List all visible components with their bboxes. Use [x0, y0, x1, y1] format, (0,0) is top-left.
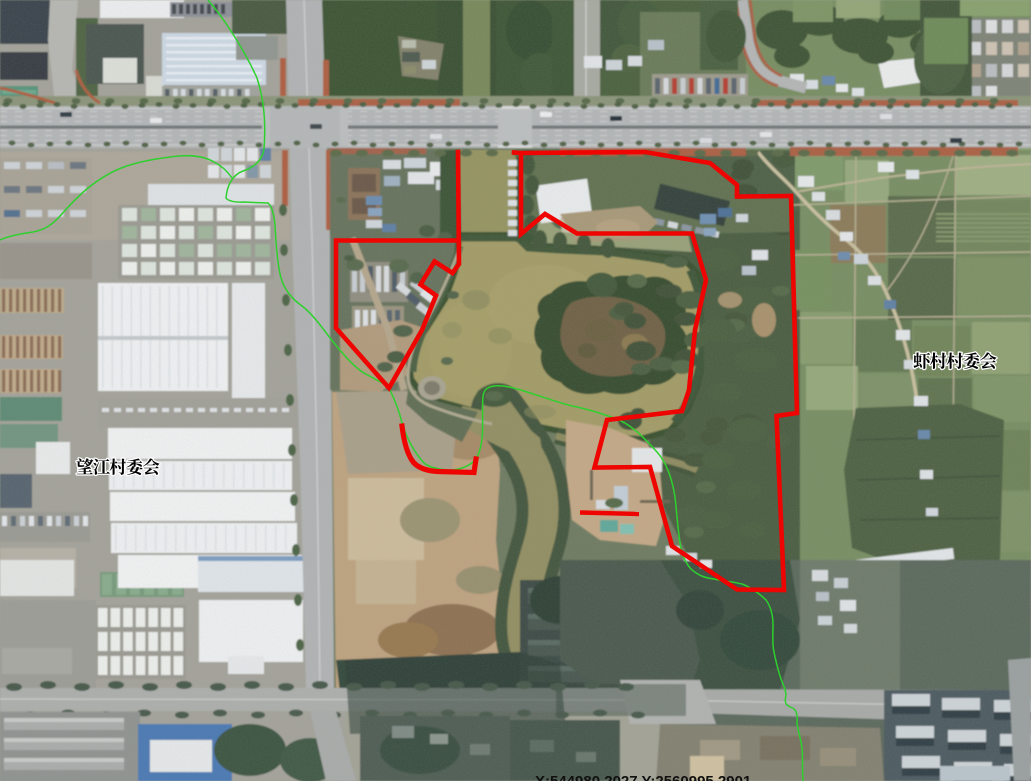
svg-text:X:544980.2027 Y:2560995.2901: X:544980.2027 Y:2560995.2901	[535, 773, 751, 781]
